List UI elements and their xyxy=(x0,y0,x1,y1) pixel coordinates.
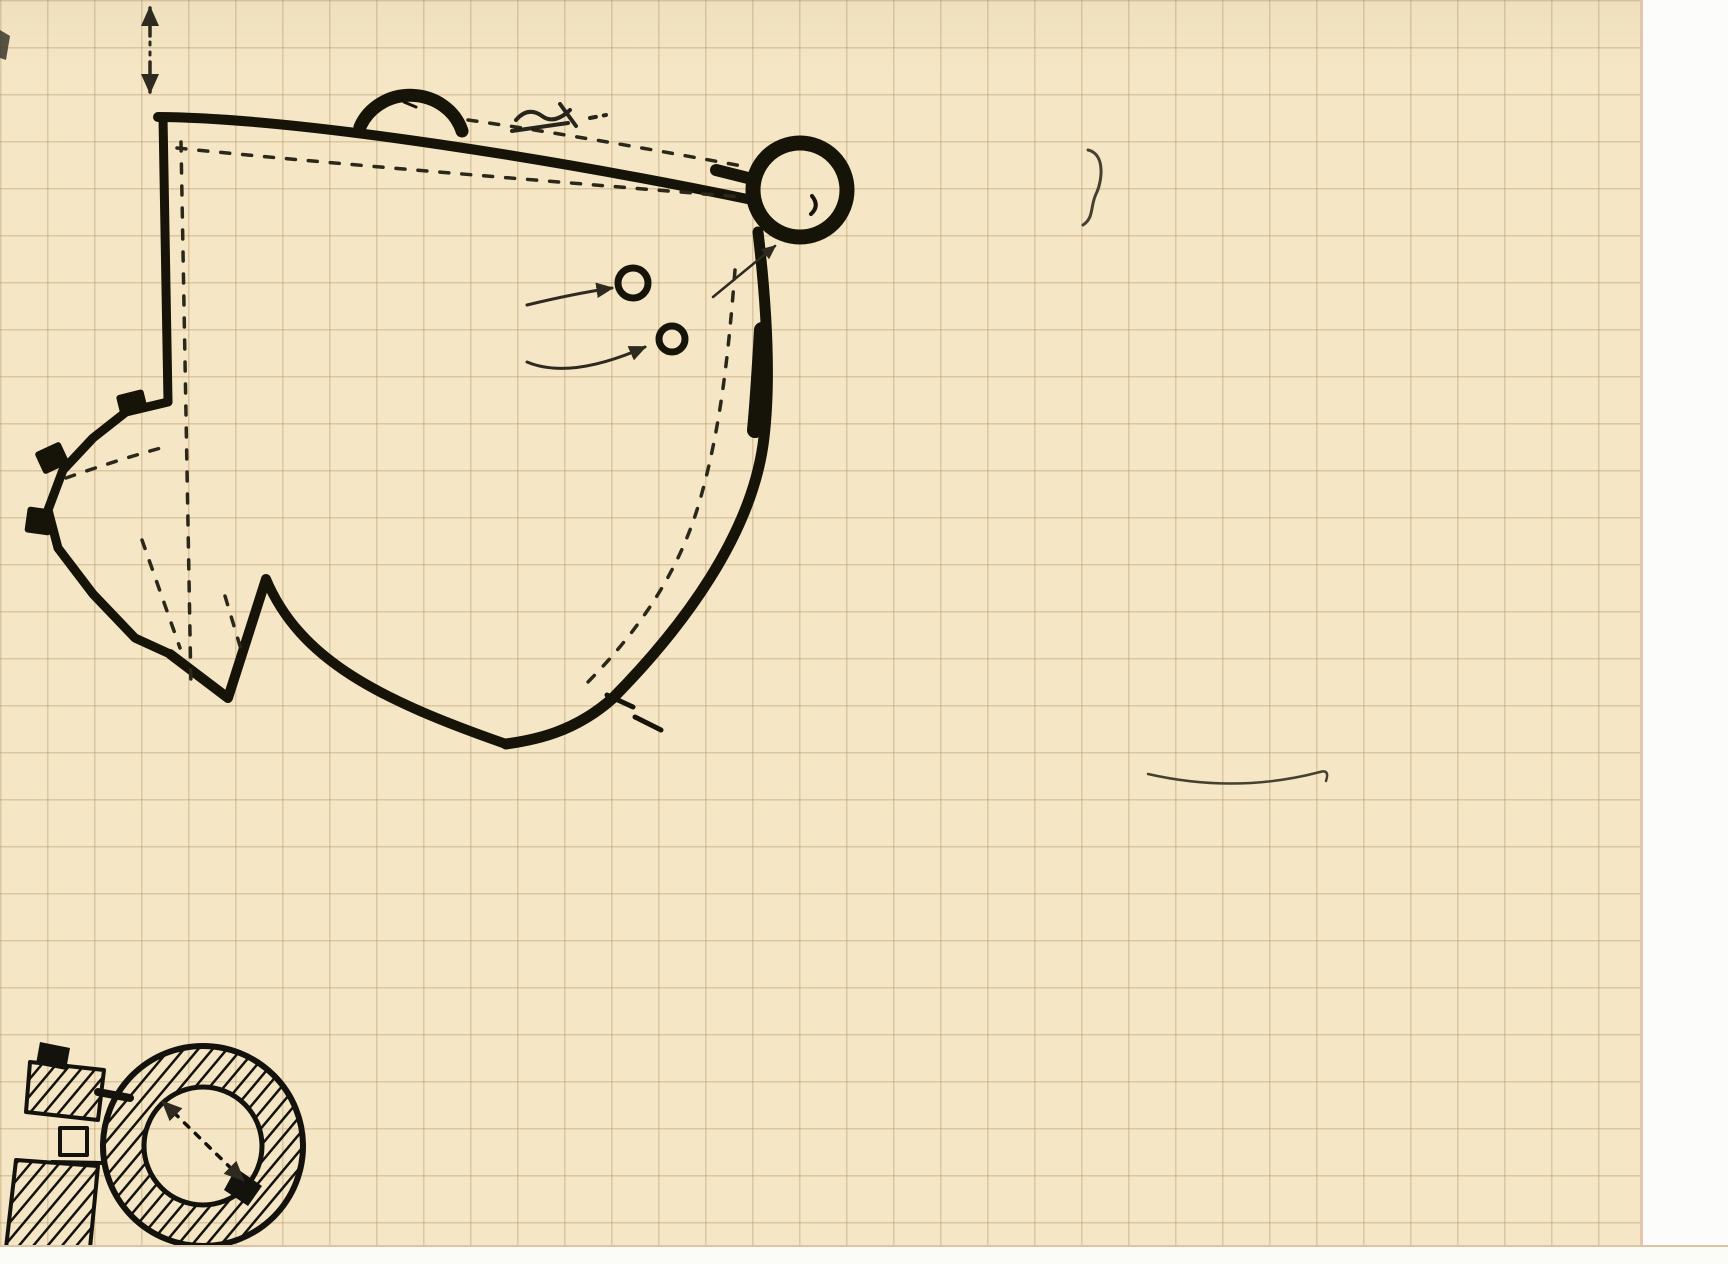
scan-white-edge-right xyxy=(1640,0,1728,1264)
handwriting-layer xyxy=(0,0,1728,1264)
scan-white-edge-bottom xyxy=(0,1245,1728,1264)
manuscript-card xyxy=(0,0,1728,1264)
